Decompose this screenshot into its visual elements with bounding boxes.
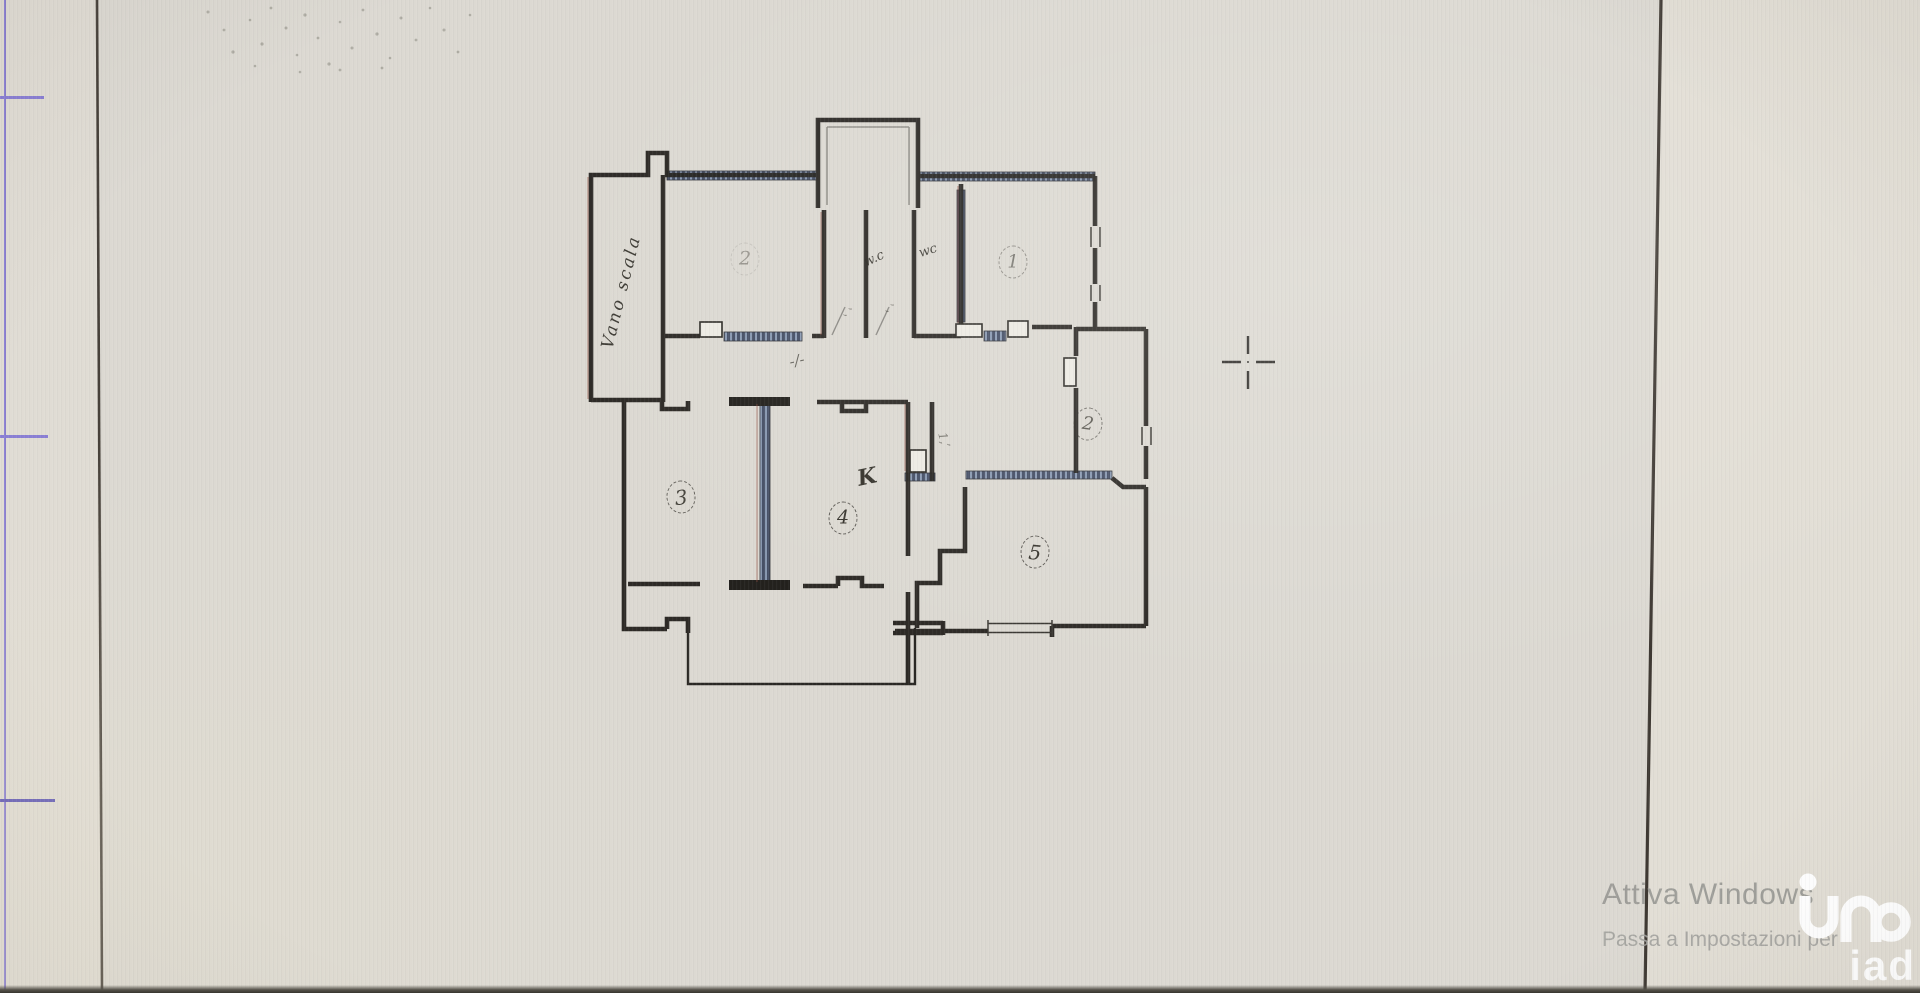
iad-logomark-icon [1786,870,1920,944]
iad-logo: iad [1786,870,1920,990]
bottom-bezel-shadow [0,985,1920,993]
room-label-4: 4 [829,502,858,535]
margin-tick [0,435,48,438]
thin-walls [688,628,915,684]
floor-plan-drawing [0,0,1920,993]
room-label-2-right: 2 [1071,406,1104,443]
screen-photo: { "scene": { "description": "photo of a … [0,0,1920,993]
right-sheet-strip [1645,0,1920,993]
room-label-3: 3 [665,479,697,515]
corridor-annotation: -/- [788,352,806,370]
shaft-inner-lines [827,127,909,205]
walls [591,120,1146,684]
margin-tick [0,799,55,802]
room-label-2-top: 2 [731,243,760,276]
margin-tick [0,96,44,99]
pencil-mark: 1,’ [936,431,952,449]
crosshair-mark [1222,336,1275,389]
margin-rule-line [4,0,6,993]
iad-logo-text: iad [1849,942,1916,990]
room-label-5: 5 [1019,534,1051,569]
window-lines [988,227,1151,636]
top-speckle-marks [207,7,472,74]
wall-caps [729,397,790,590]
left-sheet-strip [0,0,102,993]
hatched-walls [667,171,1112,582]
room-label-1: 1 [999,246,1028,279]
